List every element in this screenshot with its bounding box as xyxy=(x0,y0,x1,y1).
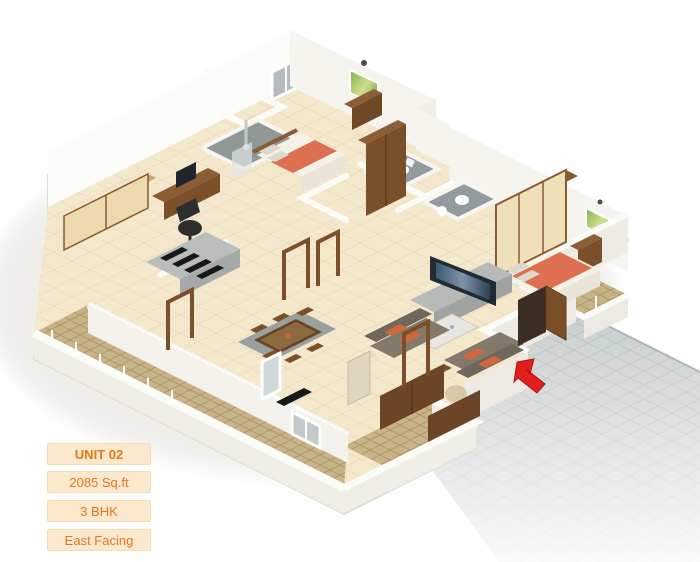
washbasin-2 xyxy=(437,206,447,216)
toilet-2 xyxy=(455,195,469,205)
area-label: 2085 Sq.ft xyxy=(47,471,151,493)
balcony-glass-door xyxy=(262,353,280,399)
centerpiece xyxy=(285,333,291,339)
unit-label: UNIT 02 xyxy=(47,443,151,465)
floorplan-page: UNIT 02 2085 Sq.ft 3 BHK East Facing xyxy=(0,0,700,562)
facing-label: East Facing xyxy=(47,529,151,551)
bhk-label: 3 BHK xyxy=(47,500,151,522)
